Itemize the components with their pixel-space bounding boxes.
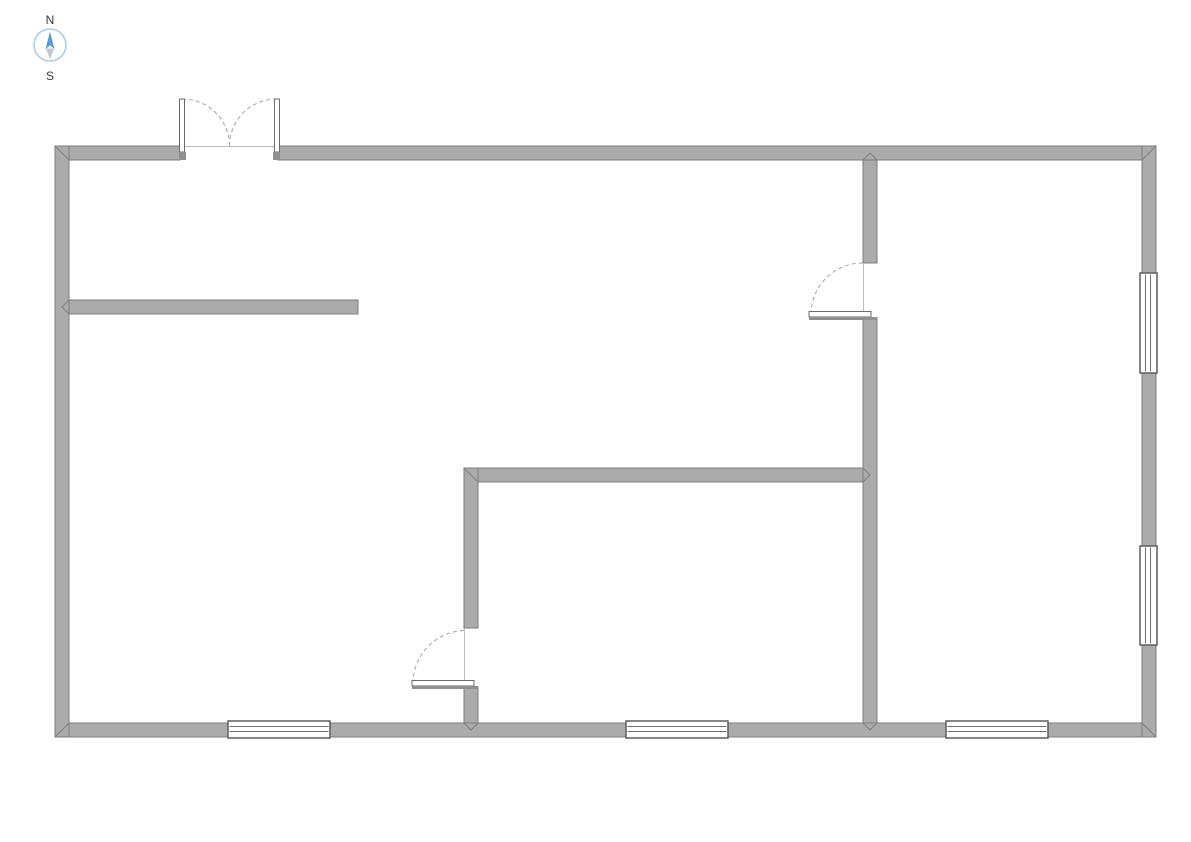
compass-south-label: S [46,69,54,83]
entry-double-door-leaf-2 [275,99,280,152]
floor-plan-page: N S [0,0,1191,842]
floor-plan-canvas: N S [0,0,1191,842]
entry-double-door [179,99,280,160]
interior-door-right-room-leaf-1 [809,312,871,318]
window-bottom-middle-frame [626,721,728,738]
wall-top-exterior-left [69,146,180,160]
window-right-lower [1140,546,1157,645]
interior-door-right-room [809,263,877,320]
interior-door-right-room-swing-arc-1 [811,263,863,315]
wall-interior-horizontal-middle [478,468,863,482]
compass-north-label: N [46,13,55,27]
walls-layer [55,146,1156,737]
wall-interior-horizontal-left [69,300,358,314]
entry-double-door-swing-arc-1 [182,99,230,146]
wall-interior-vertical-middle-lower [464,687,478,723]
wall-joints-layer [55,146,1156,737]
window-bottom-right-frame [946,721,1048,738]
window-right-lower-frame [1140,546,1157,645]
entry-double-door-swing-arc-2 [230,99,278,146]
doors-layer [179,99,877,689]
compass-icon [34,29,66,61]
window-bottom-left [228,721,330,738]
interior-door-middle-room-leaf-1 [412,681,474,687]
door-openings-layer [180,147,864,687]
wall-interior-vertical-right-lower [863,318,877,723]
wall-right-exterior [1142,146,1156,737]
entry-double-door-jamb-2 [273,152,280,160]
wall-top-exterior-right [278,146,1142,160]
entry-double-door-jamb-1 [179,152,186,160]
wall-interior-vertical-right-upper [863,160,877,263]
interior-door-right-room-jamb-1 [809,317,877,320]
interior-door-middle-room-swing-arc-1 [413,631,466,684]
window-right-upper [1140,273,1157,373]
window-right-upper-frame [1140,273,1157,373]
window-bottom-middle [626,721,728,738]
window-bottom-right [946,721,1048,738]
window-bottom-left-frame [228,721,330,738]
interior-door-middle-room-jamb-1 [412,686,478,689]
windows-layer [228,273,1157,738]
wall-interior-vertical-middle-upper [464,468,478,628]
interior-door-middle-room [412,631,478,690]
wall-left-exterior [55,146,69,737]
entry-double-door-leaf-1 [180,99,185,152]
